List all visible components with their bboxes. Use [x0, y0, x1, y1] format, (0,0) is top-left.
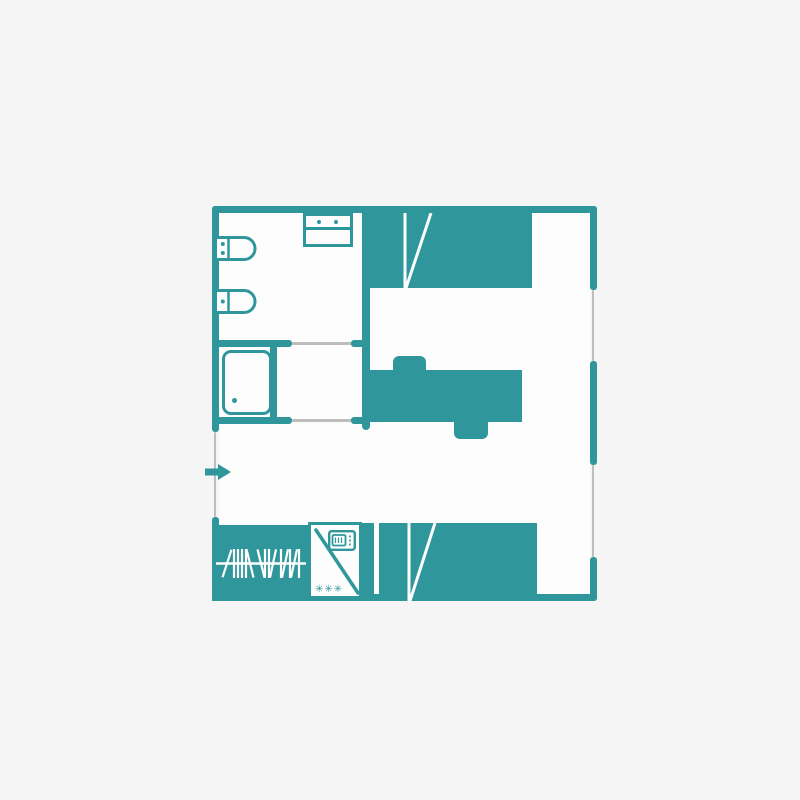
sink-tap-dot — [317, 220, 321, 224]
shower-bottom-wall — [212, 417, 292, 424]
hall-door-stub — [351, 417, 366, 424]
kitchenette: ✳✳✳ — [308, 522, 362, 599]
entrance-arrow-icon — [205, 464, 231, 480]
bunk-bed-icon — [379, 523, 537, 601]
sink-icon — [303, 213, 353, 247]
bunk-bed-icon — [370, 213, 532, 288]
sink-tap-dot — [334, 220, 338, 224]
toilet-icon — [217, 289, 258, 314]
bathroom-door-stub — [351, 340, 366, 347]
right-window-line-upper — [592, 290, 594, 361]
bed-stool — [454, 422, 488, 439]
sink-divider — [305, 227, 351, 230]
right-wall-upper — [590, 206, 597, 290]
bathroom-door-line — [292, 342, 352, 345]
floor-plan: ✳✳✳ — [0, 0, 800, 800]
clothes-hangers-icon — [215, 545, 307, 582]
shower-drain-dot — [232, 398, 237, 403]
double-bed — [370, 370, 522, 422]
right-window-line-lower — [592, 465, 594, 557]
shower-tray-icon — [222, 350, 272, 415]
bathroom-bottom-wall — [212, 340, 292, 347]
washbasin-icon — [217, 236, 258, 261]
kitchen-counter-strip — [362, 523, 374, 601]
hall-door-line — [292, 419, 352, 422]
freezer-rating-stars: ✳✳✳ — [315, 585, 343, 595]
bed-pillow — [393, 356, 426, 371]
microwave-icon — [328, 530, 356, 551]
top-wall — [212, 206, 597, 213]
right-wall-middle — [590, 361, 597, 465]
interior-wall-vertical — [362, 206, 370, 430]
